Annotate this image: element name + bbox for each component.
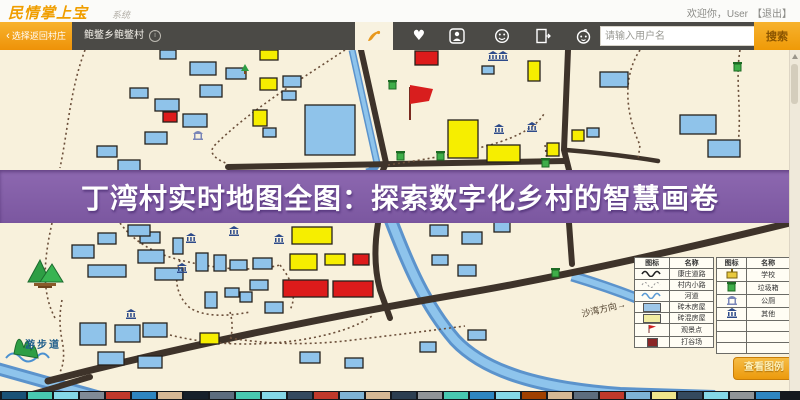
scroll-up-icon[interactable] (792, 54, 798, 59)
title-banner: 丁湾村实时地图全图：探索数字化乡村的智慧画卷 (0, 170, 800, 223)
legend-row: 打谷场 (635, 337, 714, 348)
village-tab-label: 鲍鳖乡鲍鳖村 (84, 30, 144, 41)
legend-row: 砖木房屋 (635, 302, 714, 313)
legend-table-right: 图标名称学校垃圾箱公厕其他 (716, 257, 790, 354)
legend-name-cell: 康庄道路 (670, 269, 714, 280)
welcome-user: 欢迎你，User (687, 9, 748, 20)
legend-name-cell (747, 332, 790, 343)
taskbar-thumb[interactable] (730, 392, 754, 399)
person-badge-icon (449, 28, 465, 44)
vertical-scrollbar[interactable] (789, 50, 800, 391)
legend-icon-cell (717, 295, 747, 308)
taskbar-thumb[interactable] (132, 392, 156, 399)
taskbar-thumb[interactable] (366, 392, 390, 399)
bank-icon (498, 51, 508, 61)
legend-header: 图标 (635, 258, 670, 269)
map-building (353, 254, 369, 265)
favorite-button[interactable]: ♥ (402, 22, 436, 50)
trash-bin-icon (396, 151, 405, 160)
map-building (196, 253, 208, 271)
map-building (72, 245, 94, 258)
legend-row (717, 321, 790, 332)
legend-icon-cell (717, 269, 747, 282)
legend-row: 康庄道路 (635, 269, 714, 280)
taskbar-thumb[interactable] (262, 392, 286, 399)
taskbar-thumb[interactable] (80, 392, 104, 399)
legend-name-cell: 砖木房屋 (670, 302, 714, 313)
map-building (97, 146, 117, 157)
map-building (205, 292, 217, 308)
flag-icon (410, 85, 433, 120)
map-building (420, 342, 436, 352)
taskbar-thumb[interactable] (574, 392, 598, 399)
chevron-left-icon: ‹ (6, 30, 10, 42)
map-building (145, 132, 167, 144)
legend-row (717, 332, 790, 343)
legend-name-cell: 公厕 (747, 295, 790, 308)
map-building (487, 145, 520, 162)
trail-label: 游步道 (25, 336, 61, 351)
bank-icon (274, 234, 284, 244)
taskbar-thumb[interactable] (756, 392, 780, 399)
door-exit-icon (535, 28, 552, 44)
map-building (325, 254, 345, 265)
map-building (282, 91, 296, 100)
taskbar-thumb[interactable] (626, 392, 650, 399)
scrollbar-thumb[interactable] (791, 64, 798, 104)
map-building (138, 356, 162, 368)
app-logo: 民情掌上宝 (8, 2, 88, 23)
taskbar-thumb[interactable] (704, 392, 728, 399)
taskbar-thumb[interactable] (340, 392, 364, 399)
legend-name-cell: 河道 (670, 291, 714, 302)
map-building (160, 50, 176, 59)
logout-link[interactable]: 【退出】 (752, 9, 792, 20)
bank-icon (177, 263, 187, 273)
legend-row: 垃圾箱 (717, 282, 790, 295)
village-tab[interactable]: 鲍鳖乡鲍鳖村i (84, 22, 161, 50)
map-building (115, 325, 140, 342)
map-building (290, 254, 317, 270)
map-building (345, 358, 363, 368)
map-building (98, 352, 124, 365)
legend-icon-cell (717, 332, 747, 343)
map-building (494, 222, 510, 232)
map-building (528, 61, 540, 81)
map-building (225, 288, 239, 297)
taskbar-thumb[interactable] (392, 392, 416, 399)
taskbar-thumb[interactable] (444, 392, 468, 399)
trash-bin-icon (541, 158, 550, 167)
taskbar-thumb[interactable] (158, 392, 182, 399)
map-building (680, 115, 716, 134)
welcome-text: 欢迎你，User【退出】 (687, 5, 792, 20)
legend-icon-cell (635, 337, 670, 348)
legend-name-cell: 垃圾箱 (747, 282, 790, 295)
legend-name-cell: 学校 (747, 269, 790, 282)
taskbar-thumb[interactable] (600, 392, 624, 399)
bank-icon (488, 51, 498, 61)
back-button-label: 选择返回村庄 (12, 31, 66, 41)
legend-icon-cell (717, 282, 747, 295)
map-building (253, 110, 267, 126)
bottom-taskbar (0, 391, 800, 400)
map-building (333, 281, 373, 297)
legend-row: 河道 (635, 291, 714, 302)
map-building (200, 85, 222, 97)
map-building (432, 255, 448, 265)
toolbar: ‹选择返回村庄 鲍鳖乡鲍鳖村i ♥ 搜索 (0, 22, 800, 50)
legend-icon-cell (635, 269, 670, 280)
map-building (415, 51, 438, 65)
back-to-village-button[interactable]: ‹选择返回村庄 (0, 22, 72, 50)
legend-row: 学校 (717, 269, 790, 282)
map-building (240, 292, 252, 302)
legend-icon-cell (717, 308, 747, 321)
bank-icon (527, 122, 537, 132)
map-building (600, 72, 628, 87)
legend-icon-cell (635, 324, 670, 337)
map-building (462, 232, 482, 244)
map-building (260, 78, 277, 90)
legend-row: 观景点 (635, 324, 714, 337)
legend-name-cell: 砖混房屋 (670, 313, 714, 324)
legend-icon-cell (635, 313, 670, 324)
draw-tool-button[interactable] (355, 22, 393, 50)
exit-button[interactable] (526, 22, 560, 50)
draw-tool-icon (365, 28, 383, 44)
map-building (80, 323, 106, 345)
map-building (448, 120, 478, 158)
profile-button[interactable] (440, 22, 474, 50)
legend-row: 村内小路 (635, 280, 714, 291)
banner-title: 丁湾村实时地图全图：探索数字化乡村的智慧画卷 (81, 177, 719, 217)
map-building (88, 265, 126, 277)
map-building (265, 302, 283, 313)
taskbar-thumb[interactable] (522, 392, 546, 399)
map-building (200, 333, 219, 344)
legend-row: 其他 (717, 308, 790, 321)
map-building (547, 143, 559, 156)
legend-row: 公厕 (717, 295, 790, 308)
baby-face-icon (575, 28, 592, 45)
map-building (250, 280, 268, 290)
map-building (253, 258, 272, 269)
map-building (430, 225, 448, 236)
map-building (300, 352, 320, 363)
map-building (190, 62, 216, 75)
map-building (130, 88, 148, 98)
legend-header: 名称 (747, 258, 790, 269)
bank-icon (186, 233, 196, 243)
info-icon[interactable]: i (149, 30, 161, 42)
legend-icon-cell (717, 343, 747, 354)
pavilion-icon (193, 131, 203, 140)
map-building (458, 265, 476, 276)
trash-bin-icon (733, 62, 742, 71)
legend-header: 名称 (670, 258, 714, 269)
map-building (138, 250, 164, 263)
taskbar-thumb[interactable] (678, 392, 702, 399)
legend-name-cell (747, 321, 790, 332)
taskbar-thumb[interactable] (418, 392, 442, 399)
legend-name-cell (747, 343, 790, 354)
bank-icon (494, 124, 504, 134)
view-legend-button[interactable]: 查看图例 (733, 357, 795, 380)
legend-row (717, 343, 790, 354)
bank-icon (229, 226, 239, 236)
map-building (283, 280, 328, 297)
taskbar-thumb[interactable] (288, 392, 312, 399)
trash-bin-icon (551, 268, 560, 277)
taskbar-thumb[interactable] (106, 392, 130, 399)
app-logo-suffix: 系统 (112, 8, 130, 21)
legend-icon-cell (717, 321, 747, 332)
taskbar-thumb[interactable] (652, 392, 676, 399)
baby-button[interactable] (566, 22, 600, 50)
map-building (183, 114, 207, 127)
legend-table-left: 图标名称康庄道路村内小路河道砖木房屋砖混房屋观景点打谷场 (634, 257, 714, 348)
map-building (214, 255, 226, 271)
map-building (572, 130, 584, 141)
map-building (173, 238, 183, 254)
top-header: 民情掌上宝 系统 欢迎你，User【退出】 (0, 0, 800, 22)
taskbar-thumb[interactable] (2, 392, 26, 399)
map-building (292, 227, 332, 244)
map-building (468, 330, 486, 340)
legend-name-cell: 观景点 (670, 324, 714, 337)
taskbar-thumb[interactable] (184, 392, 208, 399)
map-building (305, 105, 355, 155)
taskbar-thumb[interactable] (54, 392, 78, 399)
legend-icon-cell (635, 280, 670, 291)
legend-name-cell: 其他 (747, 308, 790, 321)
trash-bin-icon (388, 80, 397, 89)
smiley-icon (494, 28, 510, 44)
map-building (98, 233, 116, 244)
legend-row: 砖混房屋 (635, 313, 714, 324)
taskbar-thumb[interactable] (548, 392, 572, 399)
bank-icon (126, 309, 136, 319)
app-window: { "header": { "logo": "民情掌上宝", "logo_suf… (0, 0, 800, 400)
legend-icon-cell (635, 291, 670, 302)
map-building (230, 260, 247, 270)
taskbar-thumb[interactable] (28, 392, 52, 399)
map-building (128, 225, 150, 236)
trash-bin-icon (436, 151, 445, 160)
legend-name-cell: 村内小路 (670, 280, 714, 291)
map-building (143, 323, 167, 337)
username-search-input[interactable] (600, 26, 758, 46)
map-building (482, 66, 494, 74)
mood-button[interactable] (485, 22, 519, 50)
map-building (587, 128, 599, 137)
taskbar-thumb[interactable] (210, 392, 234, 399)
taskbar-thumb[interactable] (314, 392, 338, 399)
map-building (260, 50, 278, 60)
map-building (155, 99, 179, 111)
legend-icon-cell (635, 302, 670, 313)
map-building (263, 128, 276, 137)
taskbar-thumb[interactable] (236, 392, 260, 399)
legend-header: 图标 (717, 258, 747, 269)
legend-name-cell: 打谷场 (670, 337, 714, 348)
search-button[interactable]: 搜索 (754, 22, 800, 50)
heart-icon: ♥ (413, 28, 426, 44)
map-building (163, 112, 177, 122)
taskbar-thumb[interactable] (496, 392, 520, 399)
taskbar-thumb[interactable] (470, 392, 494, 399)
map-building (708, 140, 740, 157)
map-building (283, 76, 301, 87)
